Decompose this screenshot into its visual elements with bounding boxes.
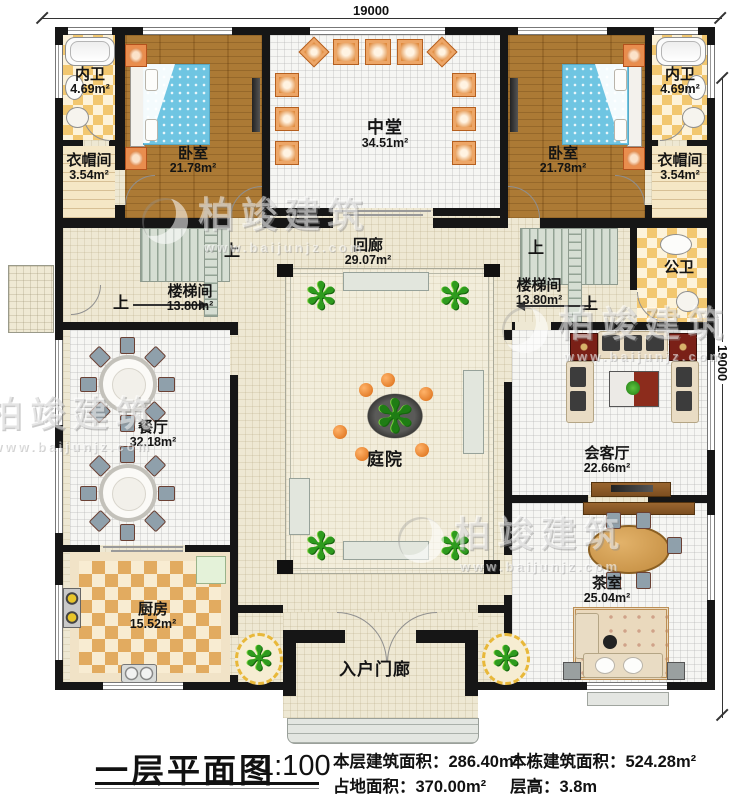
nightstand: [623, 147, 645, 170]
room-label-stair-left: 楼梯间 13.80m²: [167, 284, 214, 314]
dining-chair: [158, 486, 175, 501]
wall: [433, 218, 508, 228]
column: [484, 560, 500, 574]
room-label-cloak-right: 衣帽间 3.54m²: [657, 153, 702, 183]
room-label-bedroom-right: 卧室 21.78m²: [540, 146, 587, 176]
window: [707, 515, 715, 600]
round-table: [99, 355, 157, 413]
nightstand: [125, 147, 147, 170]
orange-fruit: [359, 383, 373, 397]
wall: [512, 495, 588, 503]
plant-icon: ✻: [305, 528, 337, 566]
kitchen-sink: [121, 664, 157, 683]
wall: [504, 330, 512, 340]
dimension-right-value: 19000: [715, 342, 730, 384]
dimension-line-right: [722, 78, 723, 718]
column: [277, 560, 293, 574]
hall-chair: [275, 141, 299, 165]
planter-box: [343, 272, 429, 291]
pillow: [614, 69, 627, 91]
fridge: [196, 556, 226, 584]
orange-fruit: [415, 443, 429, 457]
wall: [230, 675, 238, 682]
room-label-bedroom-left: 卧室 21.78m²: [170, 146, 217, 176]
orange-fruit: [333, 425, 347, 439]
window: [654, 27, 698, 35]
sofa-cushion: [676, 367, 692, 387]
pillow: [614, 119, 627, 141]
tv-panel: [252, 78, 260, 132]
sliding-door: [343, 214, 423, 216]
room-label-corridor: 回廊 29.07m²: [345, 238, 392, 268]
tea-chair: [636, 512, 651, 529]
pillow: [145, 69, 158, 91]
wall: [270, 208, 333, 216]
stat-footprint-area: 占地面积：370.00m²: [333, 773, 486, 797]
wall: [540, 218, 707, 228]
sink: [676, 291, 699, 312]
orange-fruit: [381, 373, 395, 387]
dining-chair: [120, 337, 135, 354]
dining-table-group: [80, 445, 176, 541]
planter-box: [343, 541, 429, 560]
wall: [262, 35, 270, 218]
sofa-cushion: [570, 367, 586, 387]
wall: [645, 35, 652, 170]
round-stool: [603, 635, 617, 649]
wall: [63, 322, 238, 330]
dimension-top-value: 19000: [350, 3, 392, 18]
window: [55, 45, 63, 98]
plant-icon: ✻: [439, 278, 471, 316]
plan-scale: 1:100: [258, 750, 331, 783]
entry-steps: [287, 718, 479, 744]
column: [277, 264, 293, 277]
nightstand: [125, 44, 147, 67]
tea-chair: [667, 537, 682, 554]
bathtub: [65, 37, 115, 66]
wall: [504, 382, 512, 555]
column: [484, 264, 500, 277]
plant-icon: ✻: [439, 528, 471, 566]
stair-up-label: 上: [224, 237, 240, 261]
wall: [283, 630, 296, 696]
sofa-cushion: [624, 335, 642, 351]
window: [55, 448, 63, 533]
room-label-kitchen: 厨房 15.52m²: [130, 602, 177, 632]
window: [55, 340, 63, 425]
sliding-door: [111, 550, 183, 552]
porch-planter: ✻: [482, 633, 530, 685]
room-label-bath-left: 内卫 4.69m²: [70, 67, 110, 97]
sofa-cushion: [676, 391, 692, 411]
hall-chair: [452, 73, 476, 97]
tv-panel: [510, 78, 518, 132]
table-plant: [626, 381, 640, 395]
window: [587, 682, 667, 690]
sofa-pillow: [595, 657, 615, 674]
room-label-tea: 茶室 25.04m²: [584, 576, 631, 606]
hall-stool: [365, 39, 391, 65]
room-label-bath-right: 内卫 4.69m²: [660, 67, 700, 97]
sofa-pillow: [623, 657, 643, 674]
tv: [611, 485, 653, 492]
orange-fruit: [419, 387, 433, 401]
window: [518, 27, 607, 35]
sliding-door: [103, 546, 183, 548]
hall-stool: [333, 39, 359, 65]
exterior-step: [587, 692, 669, 706]
pillow: [145, 119, 158, 141]
stair-up-label: 上: [113, 289, 129, 313]
side-platform: [8, 265, 54, 333]
window: [68, 27, 112, 35]
side-table: [667, 662, 685, 680]
wall: [262, 218, 333, 228]
tea-chair: [636, 572, 651, 589]
room-label-stair-right: 楼梯间 13.80m²: [516, 278, 563, 308]
hall-chair: [275, 107, 299, 131]
sink: [682, 107, 705, 128]
plant-icon: ✻: [305, 278, 337, 316]
planter-box: [463, 370, 484, 454]
dining-chair: [158, 377, 175, 392]
room-label-public-bath: 公卫: [664, 260, 694, 276]
window: [310, 27, 445, 35]
wall: [115, 205, 125, 218]
wall: [63, 140, 83, 146]
wall: [230, 375, 238, 635]
stat-building-area: 本栋建筑面积：524.28m²: [510, 748, 696, 772]
wall: [63, 218, 230, 228]
wall: [645, 205, 652, 218]
floorplan-body: ✻ ✻ ✻ ✻ ✻: [55, 27, 715, 690]
window: [103, 682, 183, 690]
dimension-line-top: [42, 18, 722, 19]
wall: [478, 605, 512, 613]
room-label-reception: 会客厅 22.66m²: [584, 446, 631, 476]
hall-stool: [397, 39, 423, 65]
plant-icon: ✻: [492, 640, 521, 678]
door-opening: [515, 322, 551, 330]
stove: [63, 588, 81, 628]
wall: [500, 35, 508, 218]
wall: [465, 630, 478, 696]
sofa-cushion: [646, 335, 664, 351]
tea-chair: [606, 512, 621, 529]
sofa-cushion: [570, 391, 586, 411]
dining-chair: [120, 524, 135, 541]
dining-chair: [80, 377, 97, 392]
stair-right-run: [568, 228, 582, 324]
window: [143, 27, 232, 35]
hall-chair: [275, 73, 299, 97]
stat-story-height: 层高：3.8m: [510, 773, 597, 797]
bathtub: [656, 37, 706, 66]
toilet: [660, 234, 692, 255]
wall: [687, 140, 707, 146]
room-label-dining: 餐厅 32.18m²: [130, 420, 177, 450]
room-label-cloak-left: 衣帽间 3.54m²: [66, 153, 111, 183]
wall: [630, 228, 637, 290]
speaker-cabinet: [570, 333, 598, 361]
title-underline-thin: [95, 788, 319, 789]
room-label-courtyard: 庭院: [367, 451, 403, 469]
wall: [230, 330, 238, 335]
hall-chair: [452, 141, 476, 165]
speaker-cabinet: [669, 333, 697, 361]
room-label-porch: 入户门廊: [339, 661, 411, 679]
round-table: [99, 464, 157, 522]
porch-planter: ✻: [235, 633, 283, 685]
wall: [652, 140, 658, 146]
room-label-hall: 中堂 34.51m²: [362, 119, 409, 151]
stat-floor-area: 本层建筑面积：286.40m²: [333, 748, 519, 772]
sofa-cushion: [602, 335, 620, 351]
hall-chair: [452, 107, 476, 131]
wall: [230, 605, 283, 613]
wall: [185, 545, 238, 552]
plant-icon: ✻: [376, 397, 415, 435]
sink: [66, 107, 89, 128]
window: [707, 45, 715, 98]
door-arc-side-entry: [71, 285, 101, 315]
dining-chair: [80, 486, 97, 501]
wall: [433, 208, 500, 216]
floorplan-page: 19000 19000 ✻ ✻ ✻ ✻: [0, 0, 750, 805]
plant-icon: ✻: [245, 640, 274, 678]
nightstand: [623, 44, 645, 67]
wall: [115, 35, 125, 170]
window: [55, 585, 63, 660]
sliding-door: [335, 210, 431, 212]
tea-table: [588, 525, 670, 574]
bed-headboard: [627, 62, 642, 147]
window: [707, 360, 715, 450]
wall: [63, 545, 100, 552]
side-table: [563, 662, 581, 680]
stair-up-label: 上: [582, 290, 598, 314]
dining-table-group: [80, 336, 176, 432]
stair-up-label: 上: [528, 234, 544, 258]
